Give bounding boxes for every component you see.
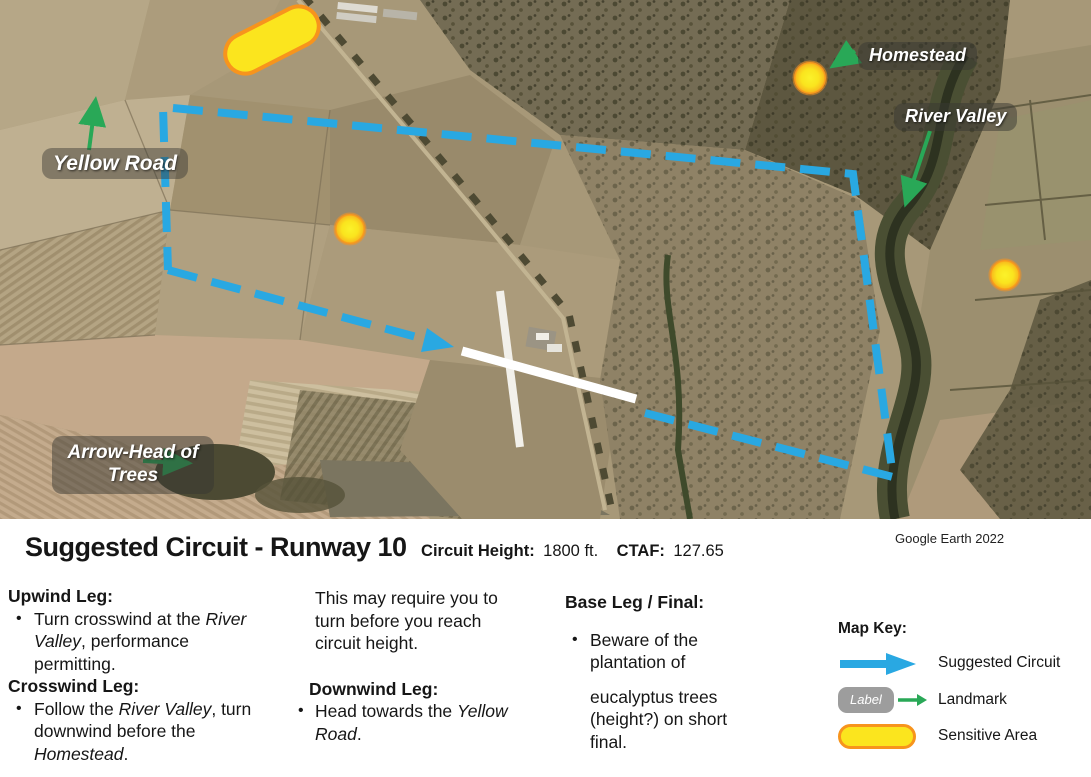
key-label-landmark: Landmark [938, 689, 1007, 712]
suggested-circuit-icon [838, 652, 938, 676]
base-leg-bullet-line2: eucalyptus trees (height?) on short fina… [590, 686, 750, 754]
circuit-height-note: This may require you to turn before you … [297, 587, 515, 655]
note-downwind-column: This may require you to turn before you … [297, 587, 515, 745]
key-row-suggested-circuit: Suggested Circuit [838, 652, 1090, 676]
map-label-river-valley: River Valley [894, 103, 1017, 131]
map-key: Map Key: Suggested Circuit Label Landmar… [838, 618, 1090, 749]
key-row-landmark: Label Landmark [838, 687, 1090, 714]
circuit-height-label: Circuit Height: [421, 542, 535, 560]
crosswind-leg-heading: Crosswind Leg: [8, 675, 270, 698]
map-key-heading: Map Key: [838, 618, 1090, 641]
key-row-sensitive-area: Sensitive Area [838, 724, 1090, 749]
landmark-icon: Label [838, 687, 938, 714]
crosswind-leg-bullet: Follow the River Valley, turn downwind b… [34, 698, 270, 766]
upwind-leg-bullet: Turn crosswind at the River Valley, perf… [34, 608, 270, 676]
ctaf-value: 127.65 [673, 542, 723, 560]
ctaf-label: CTAF: [617, 542, 665, 560]
upwind-crosswind-column: Upwind Leg: Turn crosswind at the River … [8, 585, 270, 765]
sensitive-area-icon [838, 724, 938, 749]
key-label-suggested-circuit: Suggested Circuit [938, 652, 1060, 675]
key-label-sensitive-area: Sensitive Area [938, 725, 1037, 748]
map-label-homestead: Homestead [858, 42, 977, 70]
page-title-row: Suggested Circuit - Runway 10 Circuit He… [25, 532, 724, 563]
downwind-leg-bullet: Head towards the Yellow Road. [315, 700, 515, 745]
satellite-map: Yellow Road Homestead River Valley Arrow… [0, 0, 1091, 519]
base-leg-bullet: Beware of the plantation of eucalyptus t… [590, 629, 750, 754]
green-arrow-icon [898, 693, 928, 707]
map-label-arrowhead-of-trees: Arrow-Head of Trees [52, 436, 214, 494]
blue-arrow-icon [838, 652, 918, 676]
base-final-column: Base Leg / Final: Beware of the plantati… [565, 591, 803, 753]
page-title: Suggested Circuit - Runway 10 [25, 532, 407, 562]
downwind-leg-heading: Downwind Leg: [309, 678, 515, 701]
circuit-height-value: 1800 ft. [543, 542, 598, 560]
label-pill: Label [838, 687, 894, 714]
map-label-yellow-road: Yellow Road [42, 148, 188, 179]
upwind-leg-heading: Upwind Leg: [8, 585, 270, 608]
map-attribution: Google Earth 2022 [895, 531, 1004, 546]
base-leg-bullet-line1: Beware of the plantation of [590, 629, 750, 674]
base-leg-heading: Base Leg / Final: [565, 591, 803, 614]
yellow-pill [838, 724, 916, 749]
